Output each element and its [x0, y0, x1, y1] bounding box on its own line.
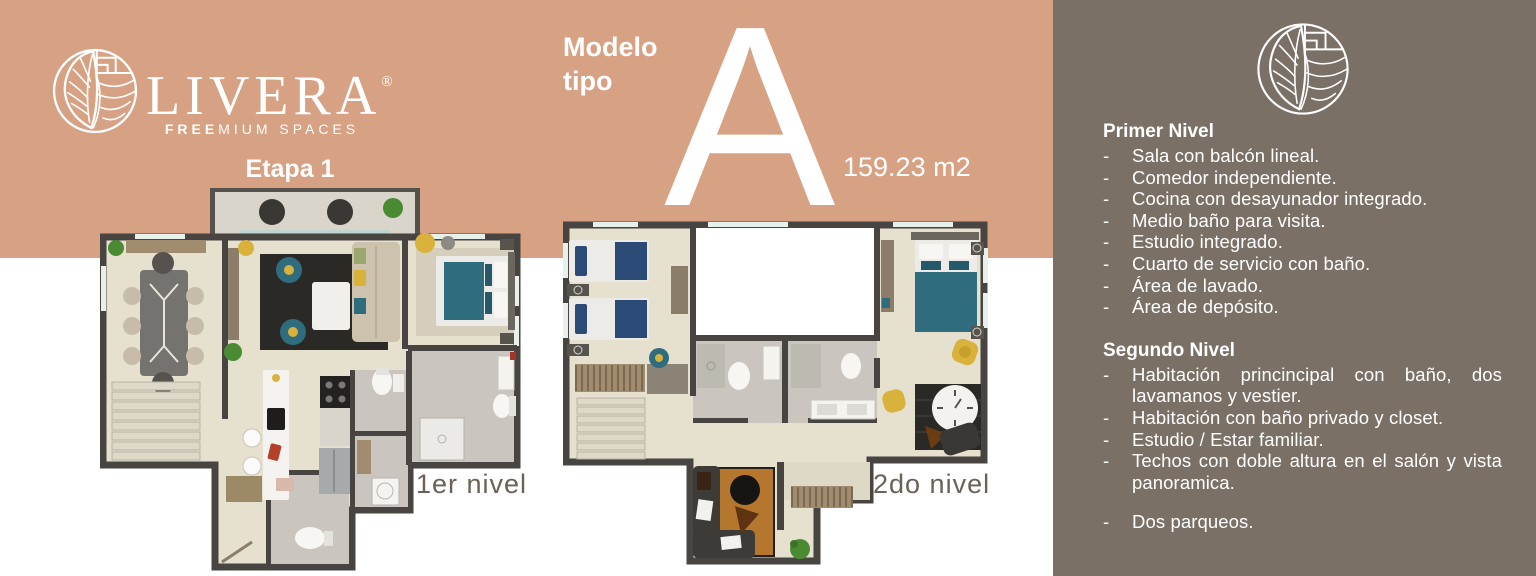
- list-item: -Medio baño para visita.: [1103, 210, 1502, 232]
- stairs: [577, 398, 645, 459]
- bullet-dash: -: [1103, 275, 1132, 297]
- level2-plan-label: 2do nivel: [873, 469, 990, 500]
- second-level-title: Segundo Nivel: [1103, 340, 1502, 362]
- brand-tagline: FREEMIUM SPACES: [146, 121, 378, 137]
- bullet-dash: -: [1103, 450, 1132, 493]
- livera-leaf-icon: [1254, 20, 1352, 118]
- bullet-dash: -: [1103, 364, 1132, 407]
- details-panel: Primer Nivel -Sala con balcón lineal. -C…: [1053, 0, 1536, 576]
- list-item: -Habitación princincipal con baño, dos l…: [1103, 364, 1502, 407]
- flyer-canvas: { "brand": { "name": "LIVERA", "register…: [0, 0, 1536, 576]
- balcony: [210, 188, 420, 237]
- bedroom: [415, 233, 515, 344]
- list-item: -Techos con doble altura en el salón y v…: [1103, 450, 1502, 493]
- list-item: -Cocina con desayunador integrado.: [1103, 188, 1502, 210]
- floor-plan-level1-graphic: [100, 186, 521, 574]
- first-level-list: -Sala con balcón lineal. -Comedor indepe…: [1103, 145, 1502, 318]
- second-level-list: -Habitación princincipal con baño, dos l…: [1103, 364, 1502, 494]
- bullet-dash: -: [1103, 145, 1132, 167]
- level1-plan-label: 1er nivel: [416, 469, 527, 500]
- livera-logo-icon: [50, 46, 140, 136]
- bullet-dash: -: [1103, 167, 1132, 189]
- first-level-section: Primer Nivel -Sala con balcón lineal. -C…: [1103, 121, 1502, 318]
- bullet-dash: -: [1103, 253, 1132, 275]
- first-level-title: Primer Nivel: [1103, 121, 1502, 143]
- closet: [791, 486, 853, 508]
- bullet-dash: -: [1103, 231, 1132, 253]
- model-title-line1: Modelo: [563, 30, 658, 64]
- model-title-line2: tipo: [563, 64, 658, 98]
- list-item: -Estudio / Estar familiar.: [1103, 429, 1502, 451]
- list-item: -Dos parqueos.: [1103, 511, 1502, 533]
- list-item: -Comedor independiente.: [1103, 167, 1502, 189]
- bullet-dash: -: [1103, 407, 1132, 429]
- list-item: -Área de depósito.: [1103, 296, 1502, 318]
- bullet-dash: -: [1103, 210, 1132, 232]
- double-height-void: [693, 228, 877, 338]
- bullet-dash: -: [1103, 511, 1132, 533]
- bullet-dash: -: [1103, 429, 1132, 451]
- list-item: -Área de lavado.: [1103, 275, 1502, 297]
- list-item: -Sala con balcón lineal.: [1103, 145, 1502, 167]
- brand-wordmark: LIVERA®: [146, 54, 393, 124]
- list-item: -Habitación con baño privado y closet.: [1103, 407, 1502, 429]
- model-area: 159.23 m2: [843, 152, 971, 183]
- list-item: -Cuarto de servicio con baño.: [1103, 253, 1502, 275]
- model-letter: A: [664, 28, 835, 205]
- bullet-dash: -: [1103, 296, 1132, 318]
- model-title: Modelo tipo: [563, 30, 658, 98]
- list-item: -Estudio integrado.: [1103, 231, 1502, 253]
- floor-plan-level2-graphic: [563, 218, 988, 566]
- brand-name: LIVERA: [146, 65, 381, 127]
- second-level-section: Segundo Nivel -Habitación princincipal c…: [1103, 340, 1502, 533]
- registered-mark: ®: [381, 74, 392, 90]
- living-room: [238, 240, 400, 350]
- bullet-dash: -: [1103, 188, 1132, 210]
- second-level-extra-list: -Dos parqueos.: [1103, 511, 1502, 533]
- stage-label: Etapa 1: [180, 155, 400, 184]
